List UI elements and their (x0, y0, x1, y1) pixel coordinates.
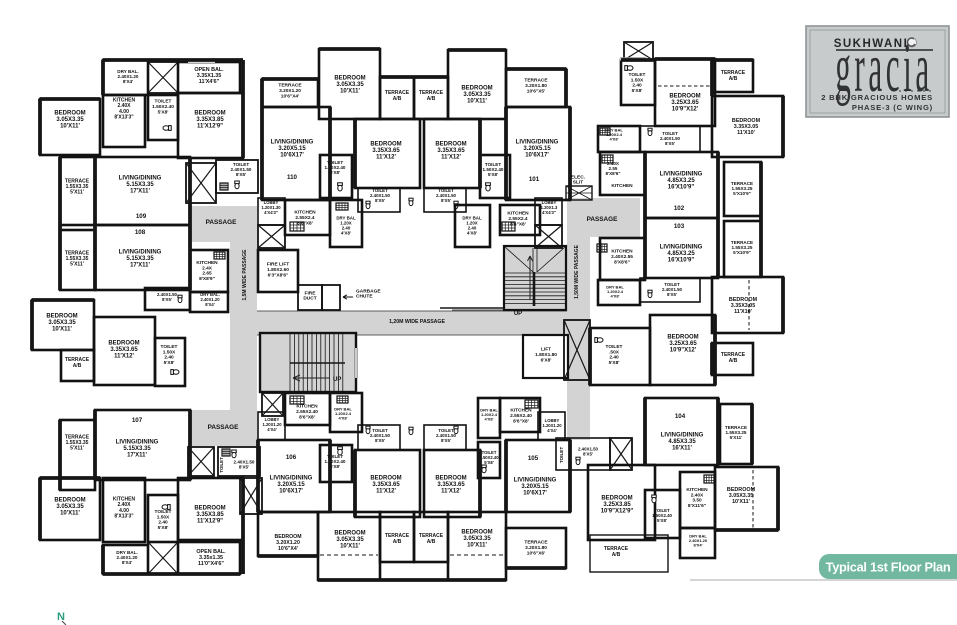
svg-text:2 BHK GRACIOUS HOMES: 2 BHK GRACIOUS HOMES (821, 93, 933, 102)
svg-text:UP: UP (514, 311, 522, 317)
svg-text:FIRE LIFT1.80X2.606'3"X8'6": FIRE LIFT1.80X2.606'3"X8'6" (267, 262, 289, 279)
svg-text:FIREDUCT: FIREDUCT (303, 290, 316, 301)
svg-text:Typical 1st Floor Plan: Typical 1st Floor Plan (826, 560, 951, 575)
svg-text:TERRACE3.20X1.2010'6"X4': TERRACE3.20X1.2010'6"X4' (278, 83, 302, 100)
svg-text:1,50M WIDE PASSAGE: 1,50M WIDE PASSAGE (574, 244, 580, 298)
svg-text:105: 105 (528, 455, 539, 462)
svg-text:102: 102 (674, 205, 685, 212)
svg-text:101: 101 (529, 176, 540, 183)
svg-text:103: 103 (674, 223, 685, 230)
svg-text:BEDROOM3.20X1.2010'6"X4': BEDROOM3.20X1.2010'6"X4' (274, 534, 301, 552)
svg-text:PASSAGE: PASSAGE (587, 216, 619, 223)
svg-text:107: 107 (132, 417, 143, 424)
svg-text:TOILET: TOILET (559, 447, 564, 463)
svg-text:108: 108 (135, 229, 146, 236)
svg-text:104: 104 (675, 413, 686, 420)
svg-text:TERRACE3.20X1.8010'6"X6': TERRACE3.20X1.8010'6"X6' (524, 540, 548, 557)
svg-text:TOILET: TOILET (219, 457, 224, 473)
svg-text:TERRACE1.55X3.255'X10'9": TERRACE1.55X3.255'X10'9" (731, 240, 753, 255)
svg-text:109: 109 (136, 213, 147, 220)
svg-text:1,20M WIDE PASSAGE: 1,20M WIDE PASSAGE (389, 319, 445, 325)
svg-text:BEDROOM3.25X3.6510'9"X12': BEDROOM3.25X3.6510'9"X12' (667, 334, 698, 353)
svg-text:PHASE-3 (C WING): PHASE-3 (C WING) (852, 103, 933, 112)
svg-text:1,5M WIDE PASSAGE: 1,5M WIDE PASSAGE (242, 249, 248, 301)
svg-text:KITCHEN: KITCHEN (611, 183, 633, 189)
svg-text:TERRACE3.20X1.8010'6"X5': TERRACE3.20X1.8010'6"X5' (524, 78, 548, 95)
svg-text:UP: UP (333, 377, 341, 383)
svg-text:BEDROOM3.35X3.8511'X12'9": BEDROOM3.35X3.8511'X12'9" (194, 110, 225, 129)
svg-text:106: 106 (286, 454, 297, 461)
svg-text:PASSAGE: PASSAGE (206, 219, 238, 226)
svg-text:BEDROOM3.35X3.8511'X12'9": BEDROOM3.35X3.8511'X12'9" (194, 505, 225, 524)
svg-text:LOBBY1.20X1.34'X4'3": LOBBY1.20X1.34'X4'3" (541, 200, 558, 215)
svg-text:PASSAGE: PASSAGE (208, 424, 240, 431)
svg-text:110: 110 (287, 174, 298, 181)
svg-text:BEDROOM3.25X3.8510'9"X12'9": BEDROOM3.25X3.8510'9"X12'9" (601, 495, 634, 514)
svg-text:TERRACE1.55X3.255'X10'9": TERRACE1.55X3.255'X10'9" (731, 181, 753, 196)
svg-text:N: N (57, 611, 65, 623)
svg-text:BEDROOM3.25X3.6510'9"X12': BEDROOM3.25X3.6510'9"X12' (669, 93, 700, 112)
svg-text:ELEC.SLIT: ELEC.SLIT (571, 174, 585, 185)
svg-text:OPEN BAL.3.35x1.3511'0"X4'6": OPEN BAL.3.35x1.3511'0"X4'6" (196, 549, 226, 567)
